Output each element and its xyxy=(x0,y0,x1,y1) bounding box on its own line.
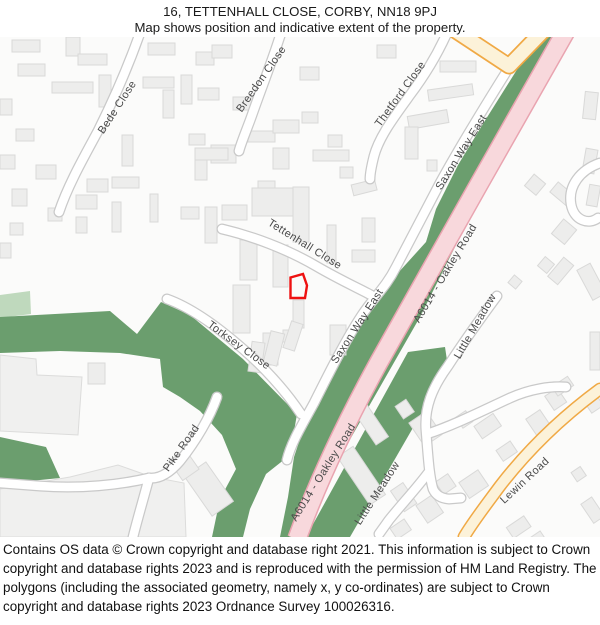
page-title: 16, TETTENHALL CLOSE, CORBY, NN18 9PJ xyxy=(0,4,600,20)
map-container: Bede Close Breedon Close Thetford Close … xyxy=(0,37,600,537)
road-label-little-meadow-top: Little Meadow xyxy=(452,292,499,361)
property-map-report: 16, TETTENHALL CLOSE, CORBY, NN18 9PJ Ma… xyxy=(0,0,600,625)
page-subtitle: Map shows position and indicative extent… xyxy=(0,20,600,36)
copyright-text: Contains OS data © Crown copyright and d… xyxy=(3,540,599,616)
map-canvas: Bede Close Breedon Close Thetford Close … xyxy=(0,37,600,537)
report-header: 16, TETTENHALL CLOSE, CORBY, NN18 9PJ Ma… xyxy=(0,0,600,36)
report-footer: Contains OS data © Crown copyright and d… xyxy=(0,537,600,616)
property-outline xyxy=(291,274,308,298)
